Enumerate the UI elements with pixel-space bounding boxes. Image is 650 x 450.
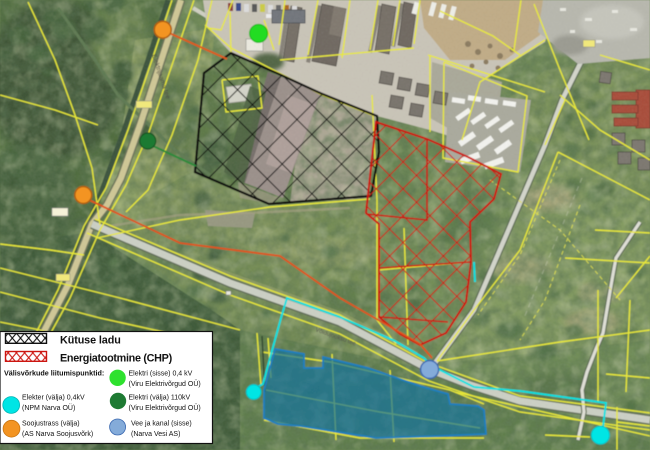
svg-text:Energiatootmine (CHP): Energiatootmine (CHP): [60, 353, 173, 365]
svg-text:(AS Narva Soojusvõrk): (AS Narva Soojusvõrk): [22, 431, 93, 438]
svg-text:Soojustrass (välja): Soojustrass (välja): [22, 421, 80, 428]
svg-text:Välisvõrkude liitumispunktid:: Välisvõrkude liitumispunktid:: [4, 369, 104, 378]
svg-text:Elekter (välja) 0,4kV: Elekter (välja) 0,4kV: [22, 395, 85, 402]
svg-text:Elektri (välja) 110kV: Elektri (välja) 110kV: [129, 395, 191, 402]
svg-text:(Viru Elektrivõrgud OÜ): (Viru Elektrivõrgud OÜ): [129, 380, 201, 388]
svg-text:Vee ja kanal (sisse): Vee ja kanal (sisse): [131, 421, 192, 428]
svg-text:Kütuse ladu: Kütuse ladu: [60, 335, 121, 347]
svg-text:(Viru Elektrivõrgud OÜ): (Viru Elektrivõrgud OÜ): [129, 404, 201, 412]
svg-text:(NPM Narva OÜ): (NPM Narva OÜ): [22, 404, 75, 412]
svg-text:Elektri (sisse) 0,4 kV: Elektri (sisse) 0,4 kV: [129, 371, 193, 378]
svg-text:(Narva Vesi AS): (Narva Vesi AS): [131, 431, 180, 438]
